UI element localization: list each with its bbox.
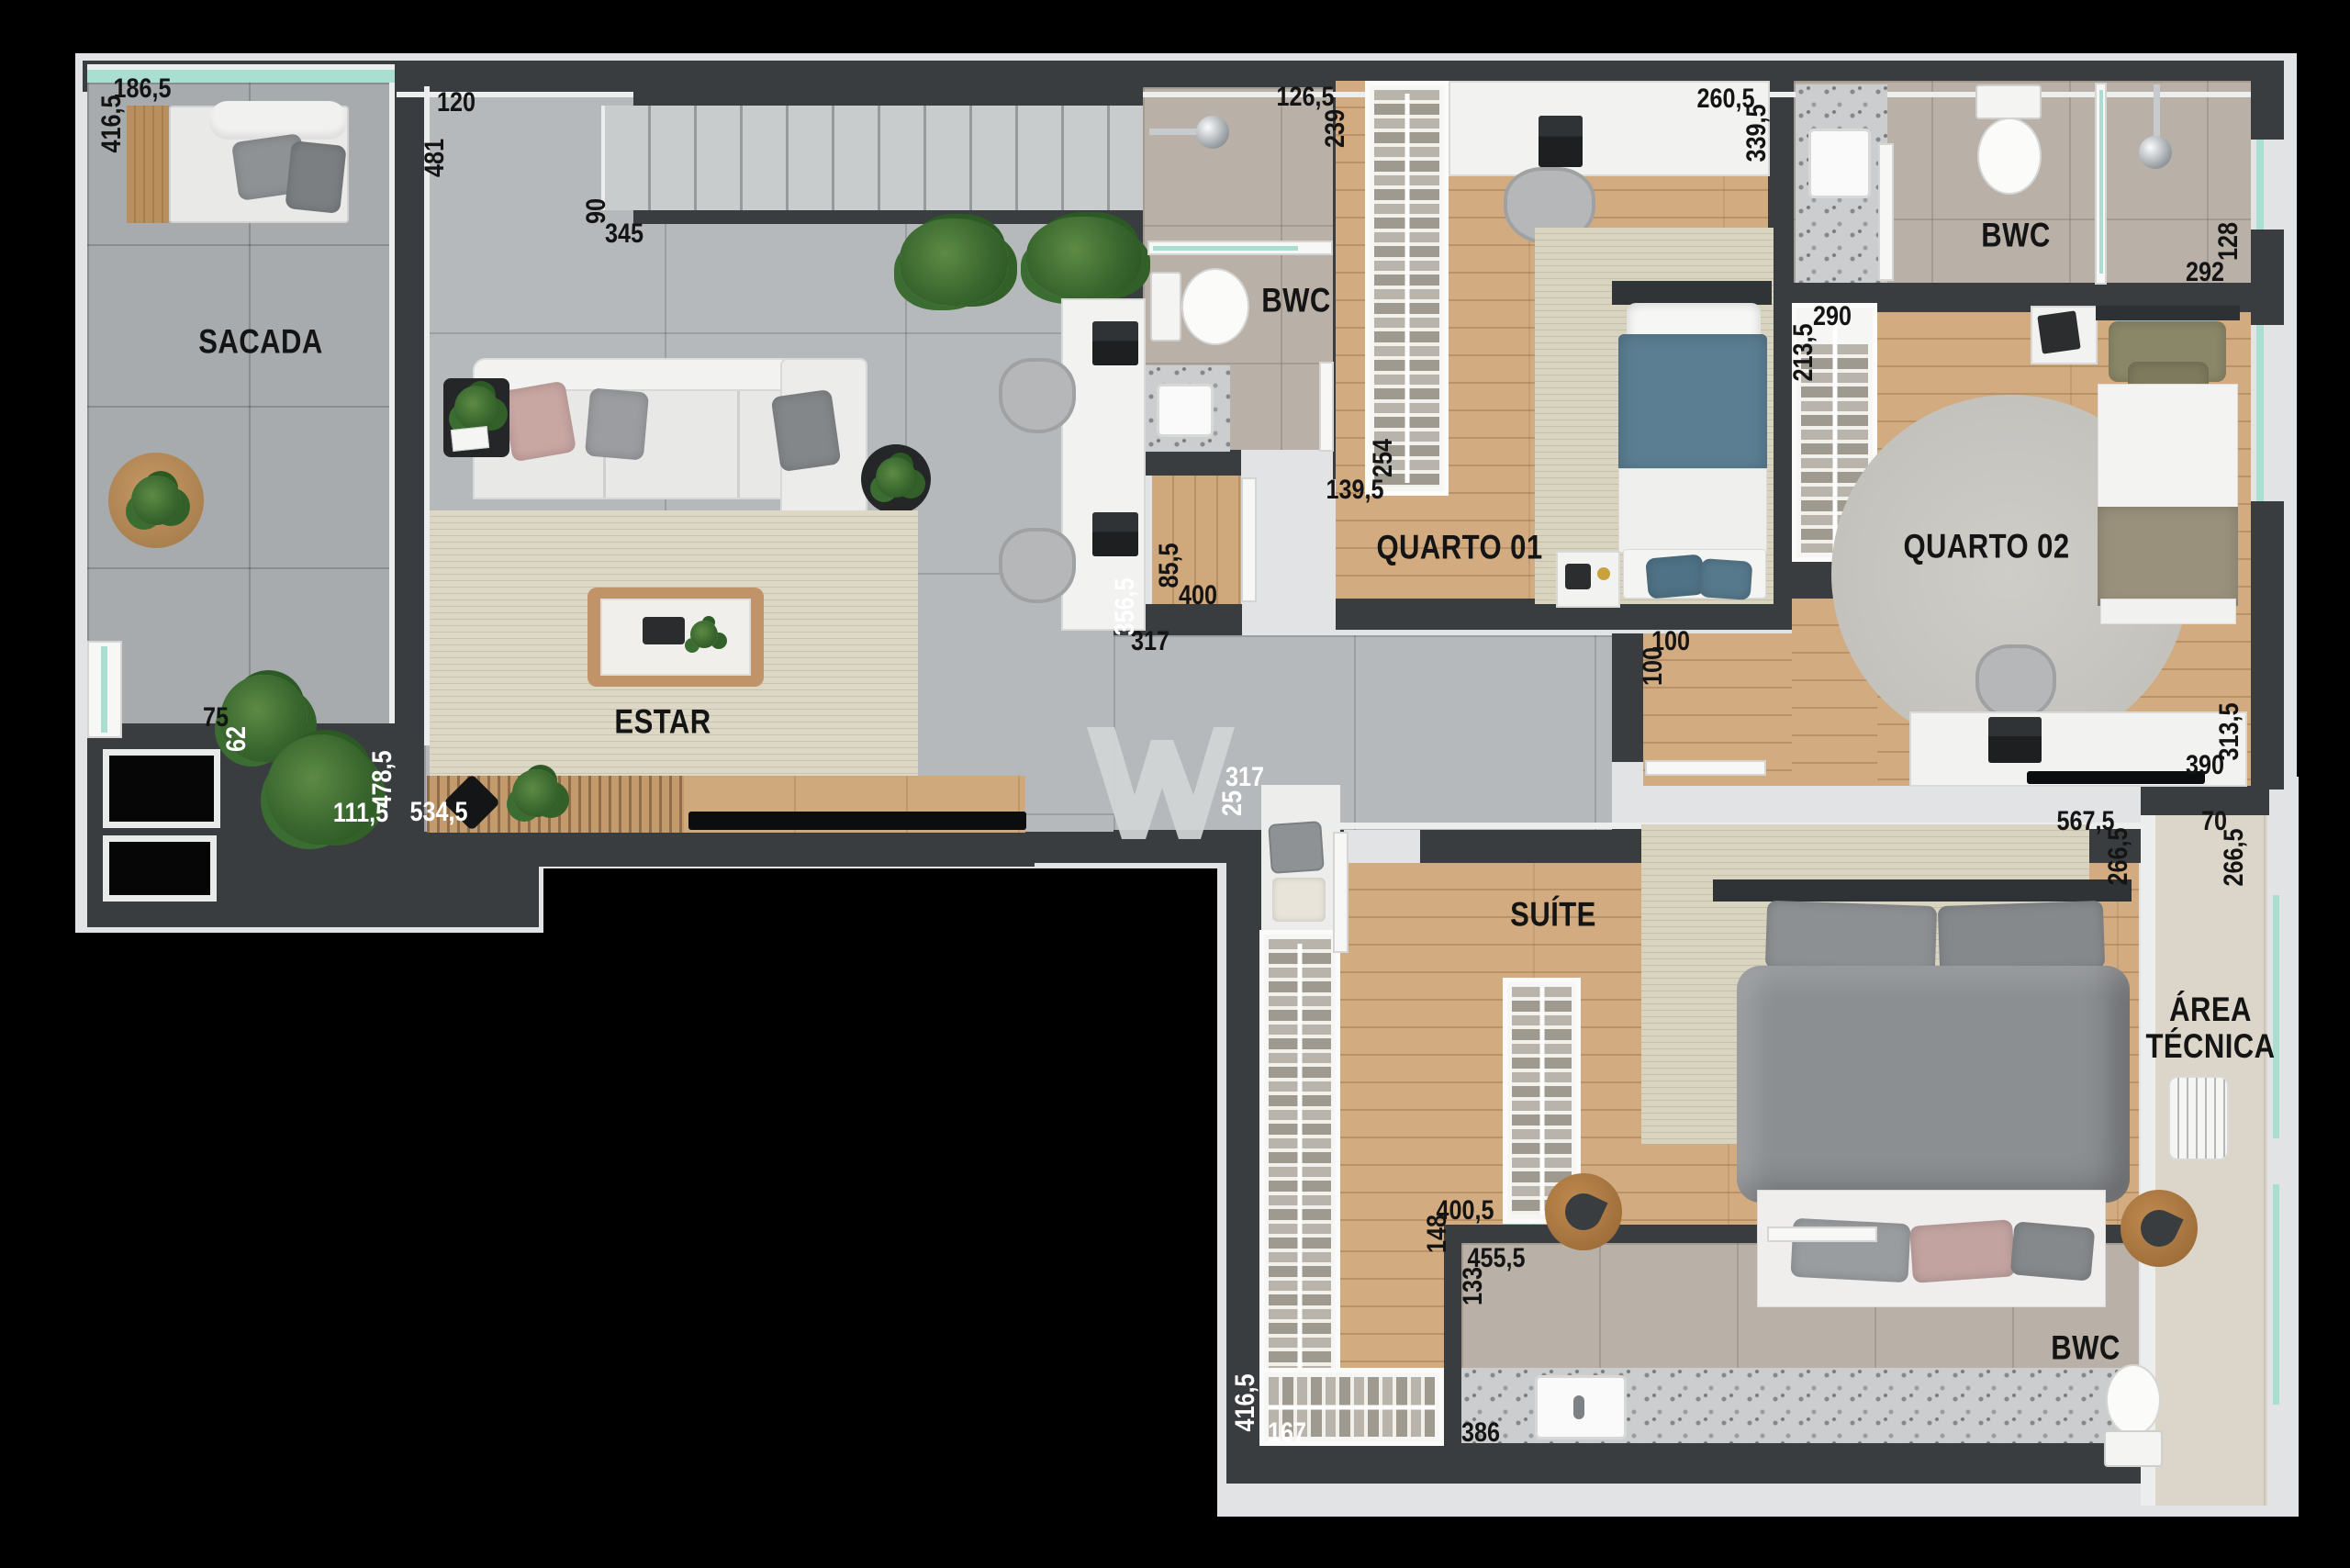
quarto02-entry-door: [1645, 760, 1766, 776]
wall: [2251, 230, 2284, 325]
room-label-area-tecnica: ÁREA TÉCNICA: [2128, 991, 2294, 1065]
coffee-table-decor: [643, 617, 685, 644]
dim-suite-entry-t: 25: [1219, 790, 1247, 816]
dim-bwc2-w: 292: [2186, 259, 2224, 286]
dim-closet-q2-h: 213,5: [1790, 323, 1818, 381]
bed-q1-blanket: [1618, 334, 1767, 472]
wall: [2251, 61, 2284, 140]
toilet3-bowl: [2106, 1364, 2161, 1436]
nightstand-decor: [1565, 564, 1591, 589]
closet-rod: [1832, 312, 1837, 552]
ac-unit: [2168, 1076, 2229, 1160]
laptop: [1988, 717, 2042, 763]
laptop: [1092, 512, 1138, 556]
sofa-pillow-pink: [501, 381, 576, 463]
niche-door: [1241, 477, 1257, 602]
nightstand-lamp: [1597, 567, 1610, 580]
suitcase: [1268, 821, 1325, 874]
room-label-bwc1: BWC: [1261, 284, 1330, 318]
tv-q2: [2027, 771, 2205, 784]
nightstand-tablet: [2037, 310, 2080, 353]
bed-q1-sheet: [1618, 468, 1767, 553]
plant-sacada: [266, 734, 376, 845]
tv: [688, 812, 1026, 830]
dim-bwc1-side: 239: [1322, 109, 1349, 148]
dim-bwc3-h: 133: [1460, 1267, 1487, 1305]
dim-sacada-b4: 111,5: [333, 800, 388, 827]
dim-sacada-left: 416,5: [98, 95, 126, 152]
closet-rod: [1539, 987, 1544, 1215]
wall: [2251, 501, 2284, 790]
blanket-stack: [1272, 878, 1326, 922]
dim-bwc1-door: 139,5: [1326, 476, 1383, 504]
suite-entry-door: [1333, 832, 1348, 953]
daybed-pillow: [285, 140, 346, 214]
partition-glass: [2099, 90, 2103, 274]
dim-estar-top: 120: [437, 89, 476, 117]
shower-head-icon: [1196, 116, 1229, 149]
dim-bwc3-counter: 386: [1461, 1419, 1500, 1447]
closet-rod: [1298, 944, 1303, 1382]
plant-estar: [1026, 217, 1141, 299]
area-tecnica-floor: [2155, 815, 2267, 1506]
bed-q2-sheet: [2098, 384, 2238, 512]
stairs-treads: [601, 106, 1143, 210]
dim-estar-wall-r: 356,5: [1112, 577, 1139, 635]
shower-arm: [1149, 129, 1203, 135]
bed-suite-duvet: [1737, 966, 2130, 1203]
bwc3-door: [1767, 1226, 1877, 1242]
bed-suite-foot-pillow: [2010, 1221, 2096, 1281]
room-label-bwc2: BWC: [1981, 218, 2050, 252]
sofa-pillow-dark: [771, 389, 842, 472]
dim-suite-top-h: 266,5: [2105, 827, 2132, 885]
stairs-rail-top: [633, 92, 1143, 106]
shaft-box: [103, 835, 217, 902]
bed-q1-foot-pillow: [1699, 558, 1753, 600]
dim-hall-opening-h: 100: [1639, 647, 1667, 686]
closet-rod: [1268, 1405, 1436, 1409]
bed-q1-foot-pillow: [1645, 554, 1706, 599]
console-plant: [512, 769, 560, 817]
coffee-table-plant: [690, 621, 718, 648]
room-label-suite: SUÍTE: [1510, 898, 1596, 932]
dim-estar-tv-wall: 534,5: [409, 799, 467, 826]
shaft-box: [103, 749, 220, 828]
dim-niche-w: 400: [1179, 582, 1217, 610]
plant-on-table: [131, 476, 181, 525]
bwc2-door: [1878, 143, 1894, 281]
book-on-table: [451, 426, 489, 452]
laptop: [1092, 321, 1138, 365]
dim-closet-q2-w: 290: [1813, 303, 1852, 330]
bed-suite-pillow: [1765, 901, 1937, 974]
laptop: [1539, 116, 1583, 167]
wall: [1226, 785, 1261, 1450]
dim-at-h: 266,5: [2221, 828, 2248, 886]
dim-desk-q1-h: 339,5: [1743, 104, 1771, 162]
toilet2-tank: [1975, 84, 2042, 119]
wall: [1226, 1443, 2143, 1484]
closet-quarto01: [1365, 81, 1449, 496]
dim-stairs-w: 345: [605, 220, 643, 248]
bed-suite-foot-pillow-pink: [1909, 1219, 2016, 1283]
bed-q1-headboard: [1612, 281, 1772, 305]
room-label-sacada: SACADA: [198, 325, 322, 359]
dim-estar-left: 481: [421, 139, 449, 177]
dim-suite-closet-left-w: 167: [1268, 1419, 1306, 1447]
window-glass: [2256, 325, 2264, 501]
plant-side-table: [454, 386, 498, 430]
bed-q2-headboard: [2096, 306, 2240, 320]
wall-trim: [389, 83, 395, 723]
office-chair: [999, 528, 1076, 603]
bed-q2-blanket: [2098, 507, 2238, 606]
bwc1-door: [1319, 362, 1334, 452]
wall: [1138, 450, 1241, 476]
toilet2-bowl: [1977, 118, 2042, 195]
sink-basin: [1157, 384, 1214, 437]
sink-basin-2: [1808, 129, 1871, 198]
office-chair: [999, 358, 1076, 433]
sofa-pillow-gray: [585, 387, 649, 460]
dim-closet-q1: 254: [1370, 439, 1397, 477]
sacada-door-glass: [101, 646, 107, 733]
dim-sacada-b2: 62: [223, 726, 251, 752]
dim-suite-closet-left-h: 416,5: [1232, 1373, 1259, 1431]
window-glass: [2256, 140, 2264, 230]
window-glass: [2273, 1184, 2279, 1405]
shower-head-icon: [2139, 136, 2172, 169]
partition-glass: [1153, 246, 1298, 251]
toilet-bowl: [1181, 268, 1249, 345]
dim-suite-closet-top-h: 148: [1424, 1215, 1451, 1253]
toilet3-tank: [2104, 1430, 2163, 1467]
floor-plan: SACADA ESTAR BWC QUARTO 01 BWC QUARTO 02…: [0, 0, 2350, 1568]
room-label-bwc3: BWC: [2051, 1331, 2120, 1365]
daybed-back-cushion: [209, 101, 347, 140]
room-label-quarto02: QUARTO 02: [1903, 530, 2069, 564]
plant-estar: [900, 218, 1008, 306]
shower-arm-2: [2154, 84, 2160, 141]
suite-closet-left: [1259, 930, 1340, 1395]
watermark-logo-icon: [1085, 723, 1237, 843]
daybed-side-table: [127, 106, 169, 223]
dim-bwc2-h: 128: [2215, 222, 2243, 261]
room-label-quarto01: QUARTO 01: [1376, 531, 1542, 565]
bed-suite-pillow: [1938, 901, 2105, 974]
wall: [1444, 1225, 1461, 1443]
dim-suite-entry-w: 317: [1225, 764, 1264, 791]
plant-side-table: [876, 457, 916, 498]
dim-bwc1-top: 126,5: [1276, 84, 1334, 111]
room-label-estar: ESTAR: [614, 705, 711, 739]
toilet-tank: [1150, 272, 1181, 342]
bed-suite-headboard: [1713, 879, 2132, 902]
bed-q2-footer: [2100, 599, 2236, 624]
chair-q2: [1975, 644, 2056, 720]
basin-faucet: [1573, 1395, 1584, 1419]
dim-desk-q2-h: 313,5: [2216, 702, 2244, 760]
closet-rod: [1404, 94, 1409, 483]
